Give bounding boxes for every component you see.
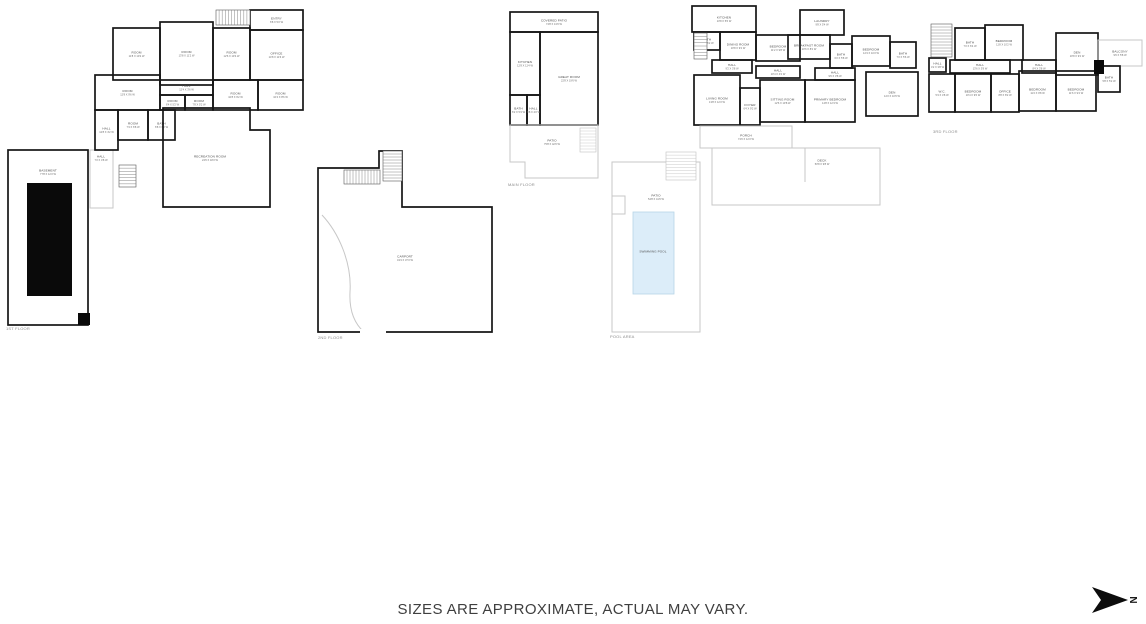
room-label: PORCH bbox=[740, 133, 752, 137]
floor-label: 3RD FLOOR bbox=[933, 129, 958, 134]
room-dimensions: 12'8 X 4'2 W bbox=[99, 130, 114, 134]
room-dimensions: 6'2 X 5'8 W bbox=[834, 56, 848, 60]
stairs-icon bbox=[344, 170, 380, 184]
floorplan-first-floor: ENTRY6'8 X 5'2 WROOM11'8 X 10'2 WROOM13'… bbox=[6, 10, 303, 331]
room-label: CARPORT bbox=[397, 254, 413, 258]
room-dimensions: 9'2 X 3'8 W bbox=[725, 66, 739, 70]
room-dimensions: 11'8 X 10'2 W bbox=[129, 54, 145, 58]
room-label: BATH bbox=[1105, 75, 1113, 79]
room-dimensions: 12'4 X 3'6 W bbox=[179, 87, 194, 91]
room-dimensions: 11'6 X 9'4 W bbox=[1069, 91, 1084, 95]
floor-label: MAIN FLOOR bbox=[508, 182, 535, 187]
room-label: BEDROOM bbox=[965, 89, 982, 93]
stairs-icon bbox=[383, 151, 402, 181]
room-label: SITTING ROOM bbox=[771, 97, 795, 101]
stairs-icon bbox=[931, 24, 952, 57]
room-dimensions: 43'4 X 37'2 W bbox=[397, 258, 414, 262]
room-label: W.C. bbox=[938, 89, 945, 93]
room-label: DEN bbox=[1074, 50, 1081, 54]
stairs-icon bbox=[580, 128, 596, 152]
disclaimer-text: SIZES ARE APPROXIMATE, ACTUAL MAY VARY. bbox=[0, 601, 1146, 618]
room-label: PATIO bbox=[651, 193, 661, 197]
room-label: ROOM bbox=[167, 99, 177, 103]
room-label: ROOM bbox=[194, 99, 204, 103]
floorplan-main-floor: COVERED PATIO74'8 X 13'0 WKITCHEN12'8 X … bbox=[508, 12, 598, 187]
room-label: BEDROOM bbox=[1029, 87, 1046, 91]
room-label: ROOM bbox=[230, 91, 240, 95]
floor-label: 2ND FLOOR bbox=[318, 335, 343, 340]
floorplan-pool-area: PATIO54'8 X 41'6 WDECK53'8 X 9'8 WSWIMMI… bbox=[610, 148, 880, 339]
room-label: HALL bbox=[933, 61, 941, 65]
floorplan-canvas: ENTRY6'8 X 5'2 WROOM11'8 X 10'2 WROOM13'… bbox=[0, 0, 1146, 624]
room-dimensions: 4'2 X 3'8 W bbox=[931, 65, 945, 69]
floorplan-third-floor: BATH7'2 X 6'4 WBEDROOM11'8 X 10'2 WHALL4… bbox=[929, 24, 1142, 134]
room-label: HALL bbox=[774, 68, 782, 72]
room-label: PRIMARY BEDROOM bbox=[814, 97, 847, 101]
room-dimensions: 9'8 X 5'4 W bbox=[815, 22, 829, 26]
room-label: OFFICE bbox=[271, 51, 283, 55]
room-label: LIVING ROOM bbox=[706, 96, 728, 100]
room-label: DINING ROOM bbox=[727, 42, 750, 46]
stairs-icon bbox=[666, 152, 696, 180]
room-dimensions: 6'8 X 5'2 W bbox=[270, 20, 284, 24]
wall-line bbox=[612, 196, 625, 214]
room-dimensions: 12'8 X 9'6 W bbox=[120, 92, 135, 96]
room-dimensions: 8'8 X 8'2 W bbox=[998, 93, 1012, 97]
solid-black-step bbox=[78, 313, 90, 325]
room-dimensions: 10'8 X 9'2 W bbox=[1070, 54, 1085, 58]
room-dimensions: 7'2 X 6'4 W bbox=[963, 44, 977, 48]
room-label: HALL bbox=[831, 70, 839, 74]
room-dimensions: 13'8 X 5'6 W bbox=[717, 19, 732, 23]
room-label: HALL bbox=[976, 63, 984, 67]
room-label: ROOM bbox=[181, 50, 191, 54]
room-dimensions: 12'6 X 10'4 W bbox=[224, 54, 241, 58]
room-label: BASEMENT bbox=[39, 168, 57, 172]
room-label: BATH bbox=[899, 51, 907, 55]
room-dimensions: 11'2 X 9'8 W bbox=[1030, 91, 1045, 95]
room-label: HALL bbox=[97, 154, 105, 158]
room-dimensions: 10'6 X 8'2 W bbox=[802, 47, 817, 51]
room-dimensions: 12'2 X 10'6 W bbox=[884, 94, 901, 98]
room-label: BATH bbox=[966, 40, 974, 44]
room-dimensions: 53'8 X 9'8 W bbox=[815, 162, 830, 166]
room-dimensions: 74'0 X 12'2 W bbox=[738, 137, 755, 141]
stairs-icon bbox=[119, 165, 136, 187]
room-dimensions: 9'6 X 5'8 W bbox=[1113, 53, 1127, 57]
room-label: BEDROOM bbox=[996, 39, 1013, 43]
room-dimensions: 11'8 X 10'2 W bbox=[996, 42, 1012, 46]
room-dimensions: 54'8 X 41'6 W bbox=[648, 197, 665, 201]
room-label: HALL bbox=[1035, 63, 1043, 67]
solid-black-area bbox=[27, 183, 72, 296]
room-label: HALL bbox=[102, 126, 110, 130]
room-label: BATH bbox=[514, 106, 522, 110]
room-label: FOYER bbox=[744, 103, 756, 107]
room-label: BATH bbox=[837, 52, 845, 56]
room-label: ROOM bbox=[275, 91, 285, 95]
room-dimensions: 14'8 X 11'6 W bbox=[269, 55, 285, 59]
room-dimensions: 7'2 X 5'6 W bbox=[896, 55, 910, 59]
room-dimensions: 22'8 X 19'6 W bbox=[561, 78, 578, 82]
room-label: BALCONY bbox=[1112, 49, 1128, 53]
floor-label: 1ST FLOOR bbox=[6, 326, 30, 331]
room-outline bbox=[712, 148, 880, 205]
room-label: LAUNDRY bbox=[814, 19, 829, 23]
floor-label: POOL AREA bbox=[610, 334, 635, 339]
room-dimensions: 75'8 X 42'0 W bbox=[544, 142, 561, 146]
room-label: BEDROOM bbox=[770, 44, 787, 48]
room-label: HALL bbox=[728, 63, 736, 67]
room-dimensions: 10'4 X 9'6 W bbox=[966, 93, 981, 97]
room-dimensions: 74'8 X 13'0 W bbox=[546, 22, 563, 26]
room-label: RECREATION ROOM bbox=[194, 154, 226, 158]
room-dimensions: 10'8 X 9'2 W bbox=[731, 46, 746, 50]
solid-black-wall bbox=[1094, 60, 1104, 74]
room-dimensions: 14'8 X 12'4 W bbox=[822, 101, 839, 105]
stairs-icon bbox=[694, 33, 707, 59]
north-label: N bbox=[1127, 596, 1138, 603]
north-arrow-icon: N bbox=[1090, 584, 1142, 620]
room-dimensions: 13'8 X 12'2 W bbox=[709, 100, 726, 104]
room-dimensions: 9'6 X 3'8 W bbox=[828, 74, 842, 78]
door-opening bbox=[360, 329, 386, 335]
room-label: SWIMMING POOL bbox=[639, 249, 666, 253]
room-dimensions: 6'8 X 4'2 W bbox=[527, 110, 541, 114]
room-dimensions: 5'4 X 4'8 W bbox=[935, 93, 949, 97]
room-dimensions: 5'8 X 5'2 W bbox=[1102, 79, 1116, 83]
room-dimensions: 7'8 X 5'2 W bbox=[192, 102, 206, 106]
room-label: ROOM bbox=[128, 121, 138, 125]
room-dimensions: 10'4 X 8'6 W bbox=[273, 95, 288, 99]
room-dimensions: 6'8 X 6'2 W bbox=[155, 125, 169, 129]
room-dimensions: 12'6 X 10'8 W bbox=[775, 101, 792, 105]
room-label: ROOM bbox=[131, 50, 141, 54]
room-label: KITCHEN bbox=[717, 15, 731, 19]
wall-line bbox=[322, 215, 364, 332]
room-dimensions: 7'4 X 6'8 W bbox=[126, 125, 140, 129]
room-label: PATIO bbox=[547, 138, 557, 142]
room-label: BATH bbox=[157, 121, 165, 125]
room-label: DECK bbox=[818, 158, 828, 162]
room-label: GREAT ROOM bbox=[558, 75, 580, 79]
room-label: BREAKFAST ROOM bbox=[794, 43, 824, 47]
room-dimensions: 7'2 X 4'8 W bbox=[94, 158, 108, 162]
room-label: DEN bbox=[889, 90, 896, 94]
floorplan-upper-floor: KITCHEN13'8 X 5'6 WBATH5'8 X 5'2 WDINING… bbox=[692, 6, 918, 148]
north-arrow-shape bbox=[1092, 587, 1128, 613]
room-dimensions: 77'8 X 12'2 W bbox=[40, 172, 57, 176]
room-label: OFFICE bbox=[999, 89, 1011, 93]
room-label: COVERED PATIO bbox=[541, 18, 568, 22]
room-dimensions: 11'2 X 9'8 W bbox=[771, 48, 786, 52]
room-label: BEDROOM bbox=[1068, 87, 1085, 91]
room-label: HALL bbox=[529, 106, 537, 110]
room-dimensions: 24'6 X 18'2 W bbox=[202, 158, 219, 162]
room-dimensions: 10'4 X 4'2 W bbox=[771, 72, 786, 76]
floorplan-second-floor: CARPORT43'4 X 37'2 W2ND FLOOR bbox=[318, 151, 492, 340]
room-label: KITCHEN bbox=[518, 60, 532, 64]
room-dimensions: 13'8 X 11'2 W bbox=[179, 53, 195, 57]
room-dimensions: 12'8 X 11'4 W bbox=[517, 63, 533, 67]
room-label: ROOM bbox=[122, 89, 132, 93]
room-dimensions: 13'6 X 3'8 W bbox=[973, 66, 988, 70]
room-dimensions: 6'4 X 9'2 W bbox=[743, 106, 757, 110]
room-dimensions: 12'4 X 10'2 W bbox=[863, 51, 880, 55]
room-label: BEDROOM bbox=[863, 47, 880, 51]
room-dimensions: 10'8 X 9'2 W bbox=[228, 95, 243, 99]
stairs-icon bbox=[216, 10, 250, 25]
room-dimensions: 6'4 X 5'2 W bbox=[166, 102, 180, 106]
room-dimensions: 6'2 X 5'4 W bbox=[512, 110, 526, 114]
room-label: ROOM bbox=[226, 50, 236, 54]
room-label: HALL bbox=[182, 84, 190, 88]
room-label: ENTRY bbox=[271, 16, 282, 20]
room-dimensions: 8'4 X 3'8 W bbox=[1032, 66, 1046, 70]
